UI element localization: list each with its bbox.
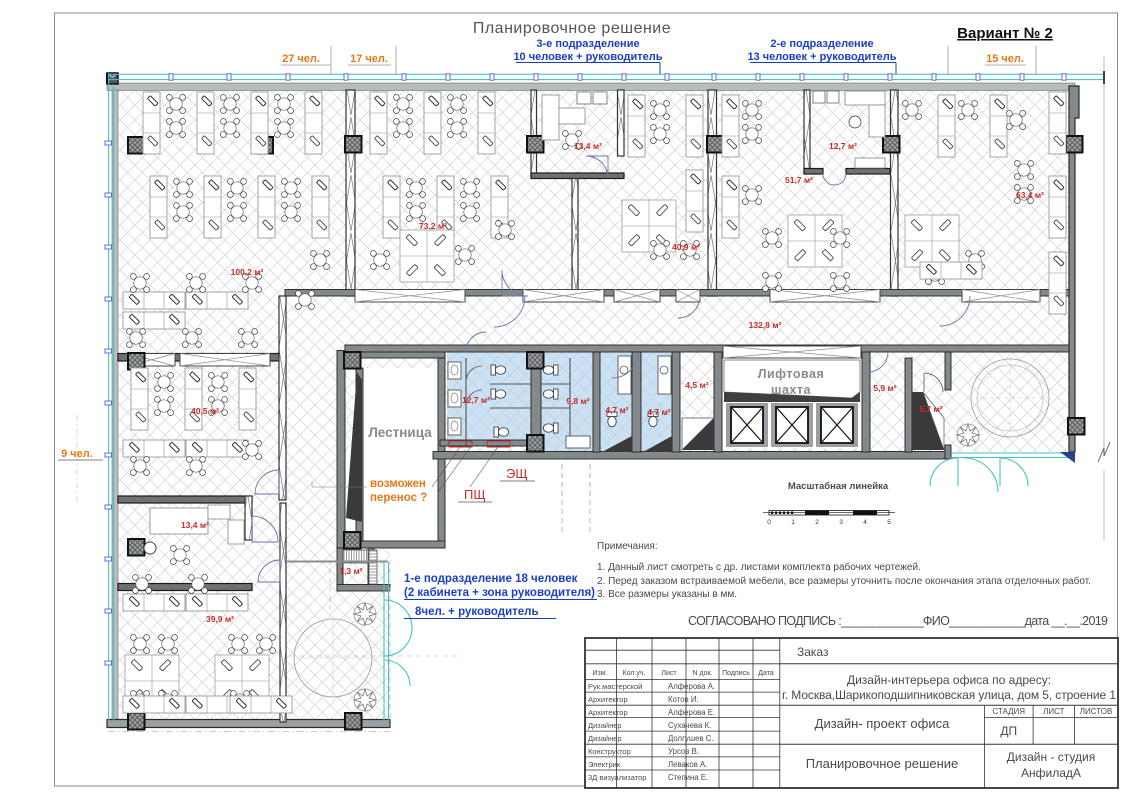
svg-text:51,7 м²: 51,7 м² — [785, 175, 813, 185]
svg-text:13 человек + руководитель: 13 человек + руководитель — [747, 51, 896, 63]
svg-text:132,8 м²: 132,8 м² — [749, 320, 782, 330]
svg-text:100,2 м²: 100,2 м² — [231, 267, 264, 277]
svg-text:Котов И.: Котов И. — [668, 695, 699, 704]
svg-text:5,9 м²: 5,9 м² — [873, 383, 896, 393]
svg-text:ПЩ: ПЩ — [464, 487, 486, 502]
svg-text:Дизайн-интерьера офиса по адре: Дизайн-интерьера офиса по адресу: — [847, 673, 1051, 687]
svg-text:13,4 м²: 13,4 м² — [574, 141, 602, 151]
svg-text:12,7 м²: 12,7 м² — [829, 141, 857, 151]
svg-text:1. Данный лист смотреть с др.: 1. Данный лист смотреть с др. листами ко… — [597, 561, 921, 573]
svg-text:перенос ?: перенос ? — [370, 492, 427, 504]
svg-text:13,4 м²: 13,4 м² — [181, 520, 209, 530]
svg-text:Алферова А.: Алферова А. — [668, 682, 715, 691]
svg-text:СОГЛАСОВАНО ПОДПИСЬ :_________: СОГЛАСОВАНО ПОДПИСЬ :_____________ФИО___… — [688, 614, 1108, 628]
svg-text:Долгушев С.: Долгушев С. — [668, 734, 714, 743]
svg-text:Подпись: Подпись — [722, 670, 750, 677]
svg-text:12,7 м²: 12,7 м² — [462, 395, 490, 405]
svg-text:Примечания:: Примечания: — [597, 541, 658, 552]
svg-text:Лестница: Лестница — [368, 425, 432, 440]
svg-text:5,7 м²: 5,7 м² — [919, 404, 942, 414]
svg-text:Планировочное решение: Планировочное решение — [473, 20, 671, 37]
svg-text:Степина Е.: Степина Е. — [668, 773, 708, 782]
svg-text:8чел. + руководитель: 8чел. + руководитель — [415, 606, 539, 618]
svg-text:ЛИСТОВ: ЛИСТОВ — [1080, 707, 1113, 716]
svg-text:возможен: возможен — [370, 478, 426, 490]
svg-text:5: 5 — [887, 519, 891, 526]
svg-text:1-е подразделение 18 человек: 1-е подразделение 18 человек — [404, 573, 578, 585]
svg-text:Дата: Дата — [758, 670, 774, 677]
svg-text:(2 кабинета + зона руководител: (2 кабинета + зона руководителя) — [404, 587, 595, 599]
svg-text:27 чел.: 27 чел. — [282, 53, 320, 65]
svg-text:4,5 м²: 4,5 м² — [685, 380, 708, 390]
svg-text:Алферова Е.: Алферова Е. — [668, 708, 715, 717]
svg-text:Архитектор: Архитектор — [588, 708, 628, 717]
svg-text:ЛИСТ: ЛИСТ — [1043, 707, 1065, 716]
svg-text:шахта: шахта — [771, 383, 811, 397]
svg-text:0: 0 — [767, 519, 771, 526]
svg-text:Вариант № 2: Вариант № 2 — [957, 25, 1053, 42]
svg-text:3. Все размеры указаны в мм.: 3. Все размеры указаны в мм. — [597, 589, 737, 600]
svg-text:Рук.мастерской: Рук.мастерской — [588, 682, 642, 691]
svg-text:Сухачева К.: Сухачева К. — [668, 721, 711, 730]
svg-text:3-е подразделение: 3-е подразделение — [536, 38, 639, 50]
svg-text:3Д визуализатор: 3Д визуализатор — [588, 773, 646, 782]
svg-text:1: 1 — [791, 519, 795, 526]
svg-text:4,7 м²: 4,7 м² — [605, 405, 628, 415]
svg-text:Урсов В.: Урсов В. — [668, 747, 699, 756]
svg-text:Заказ: Заказ — [797, 645, 829, 659]
svg-text:40,5 м²: 40,5 м² — [191, 406, 219, 416]
svg-text:Архитектор: Архитектор — [588, 695, 628, 704]
svg-text:4,7 м²: 4,7 м² — [647, 407, 670, 417]
svg-text:Лифтовая: Лифтовая — [758, 367, 825, 381]
svg-text:АнфиладА: АнфиладА — [1021, 766, 1081, 780]
svg-text:Изм.: Изм. — [593, 670, 608, 677]
svg-text:63,4 м²: 63,4 м² — [1016, 190, 1044, 200]
svg-text:Леваков А.: Леваков А. — [668, 760, 707, 769]
svg-text:Дизайн - студия: Дизайн - студия — [1007, 750, 1095, 764]
svg-text:Дизайнер: Дизайнер — [588, 734, 622, 743]
svg-text:Дизайн- проект офиса: Дизайн- проект офиса — [815, 716, 950, 731]
svg-text:10 человек + руководитель: 10 человек + руководитель — [513, 51, 662, 63]
svg-text:4: 4 — [863, 519, 867, 526]
svg-text:Лист: Лист — [661, 670, 677, 677]
svg-text:ЭЩ: ЭЩ — [506, 466, 528, 481]
svg-text:73,2 м²: 73,2 м² — [419, 221, 447, 231]
svg-text:17 чел.: 17 чел. — [350, 53, 388, 65]
svg-text:1,3 м²: 1,3 м² — [339, 566, 362, 576]
svg-text:Масштабная линейка: Масштабная линейка — [788, 481, 889, 492]
svg-text:2: 2 — [815, 519, 819, 526]
svg-text:Конструктор: Конструктор — [588, 747, 631, 756]
svg-text:г. Москва,Шарикоподшипниковска: г. Москва,Шарикоподшипниковская улица, д… — [782, 688, 1116, 702]
svg-text:Кол.уч.: Кол.уч. — [623, 670, 646, 677]
svg-text:39,9 м²: 39,9 м² — [206, 614, 234, 624]
svg-text:N док.: N док. — [693, 670, 713, 677]
svg-text:15 чел.: 15 чел. — [986, 53, 1024, 65]
svg-text:Дизайнер: Дизайнер — [588, 721, 622, 730]
svg-text:3: 3 — [839, 519, 843, 526]
svg-text:Планировочное решение: Планировочное решение — [806, 756, 959, 771]
svg-text:Электрик: Электрик — [588, 760, 621, 769]
svg-text:СТАДИЯ: СТАДИЯ — [992, 707, 1025, 716]
svg-text:2. Перед заказом встраиваемой: 2. Перед заказом встраиваемой мебели, вс… — [597, 575, 1091, 587]
svg-text:9,8 м²: 9,8 м² — [566, 396, 589, 406]
svg-text:2-е подразделение: 2-е подразделение — [770, 38, 873, 50]
svg-text:40,9 м²: 40,9 м² — [672, 242, 700, 252]
svg-text:ДП: ДП — [1000, 724, 1017, 738]
